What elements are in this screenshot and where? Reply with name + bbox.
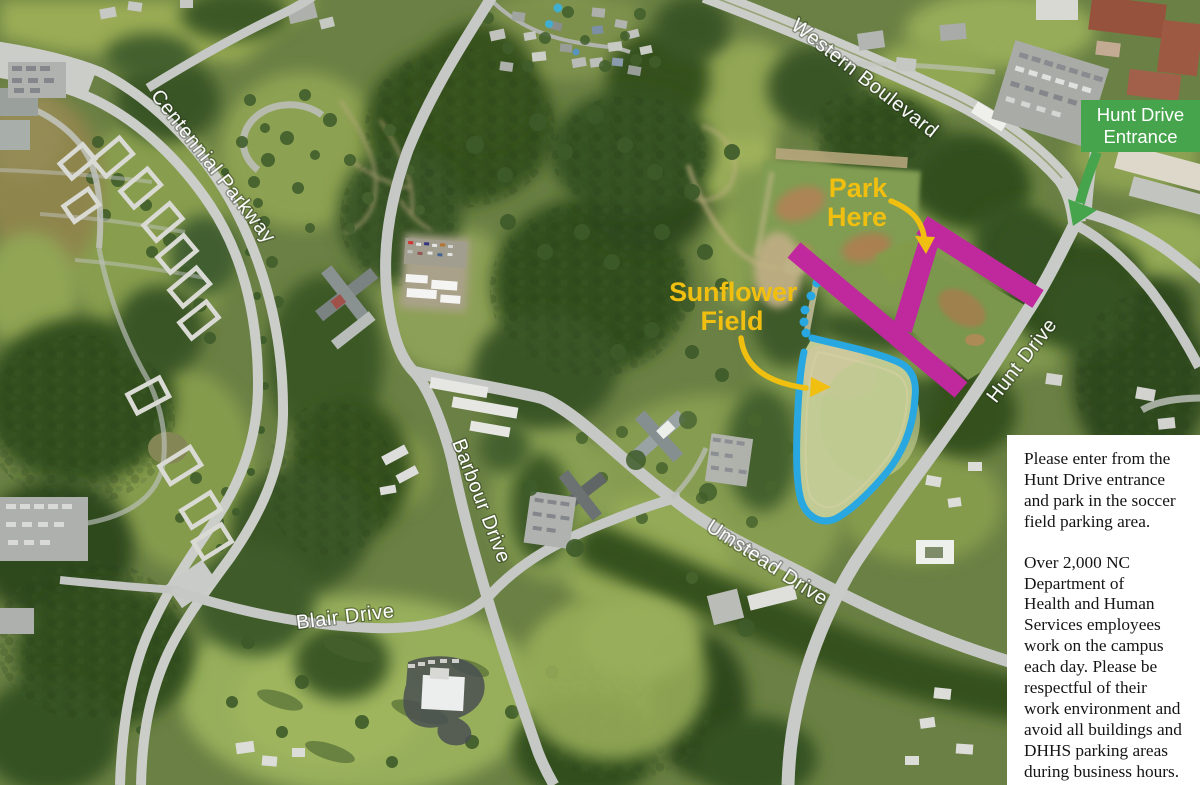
svg-text:Here: Here [827,202,887,232]
svg-text:Park: Park [829,173,889,203]
svg-text:Field: Field [700,306,763,336]
svg-text:Sunflower: Sunflower [669,277,798,307]
